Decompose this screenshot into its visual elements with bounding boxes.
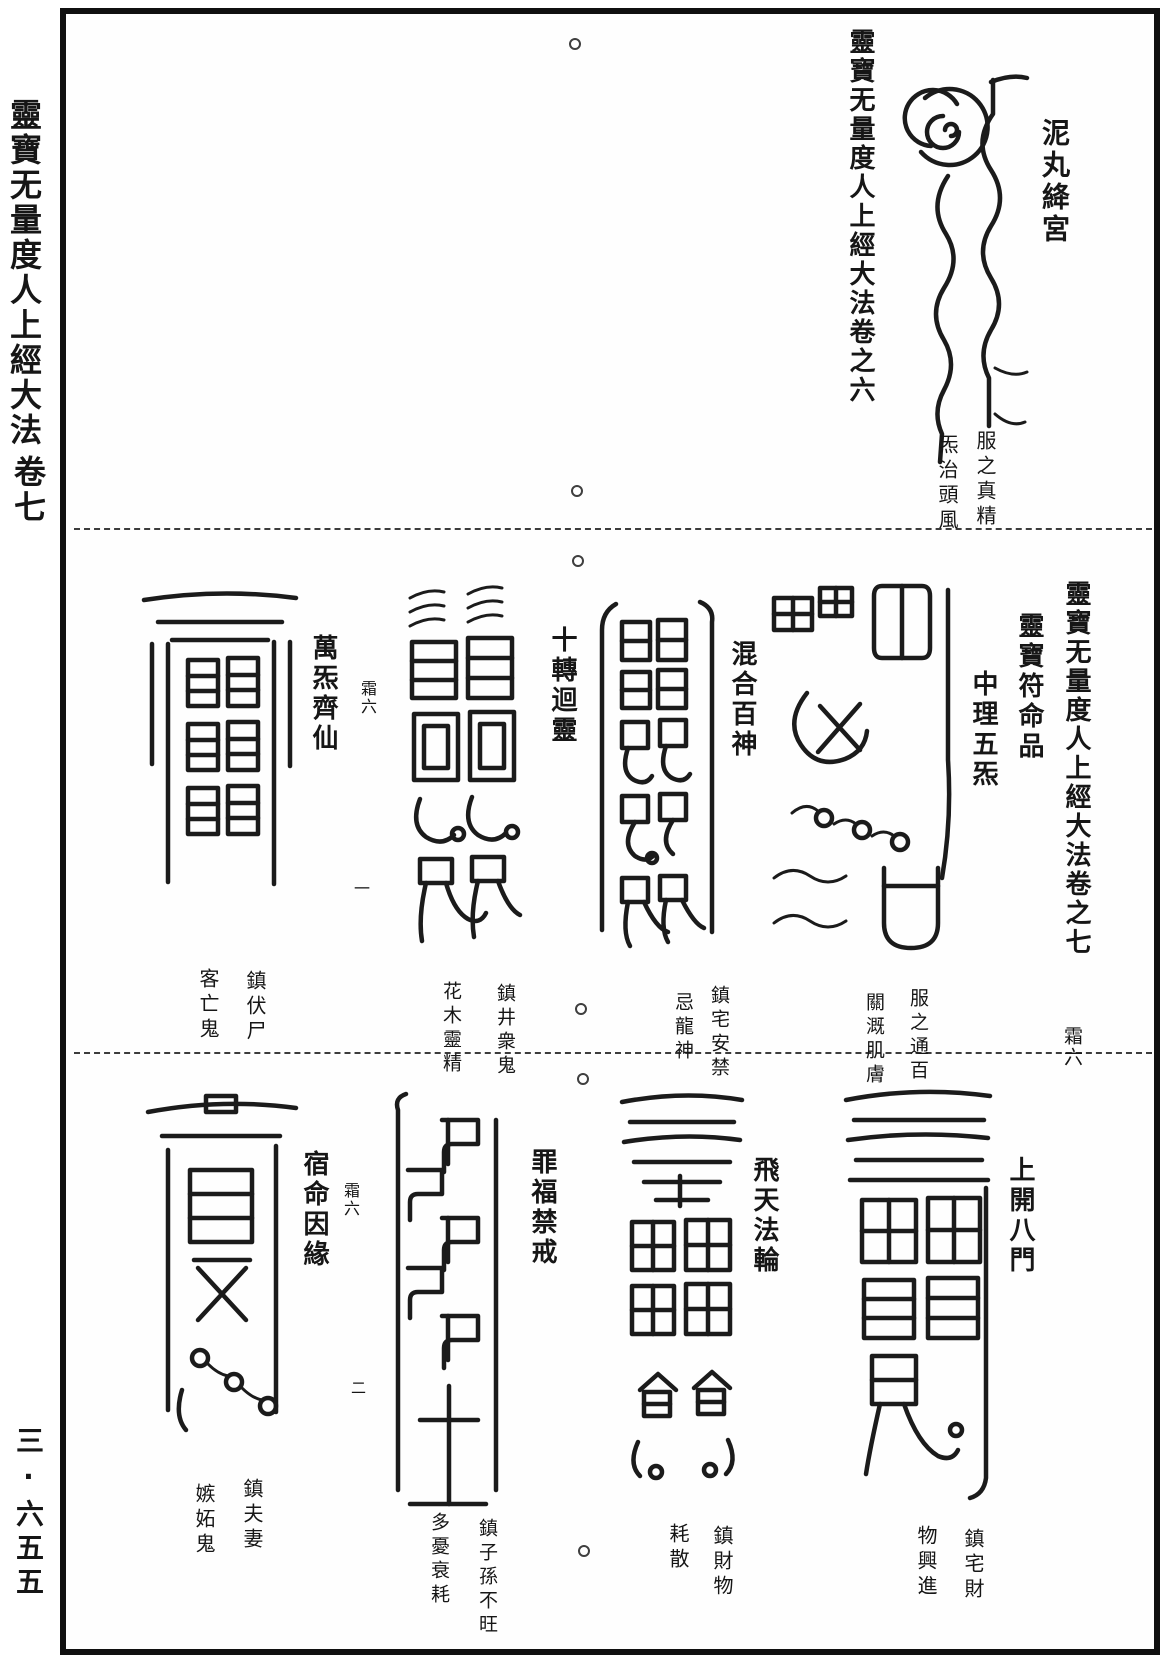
section-divider-bottom <box>74 1052 1152 1054</box>
talisman-caption-zuifu-right: 鎮子孫不旺 <box>477 1518 496 1638</box>
talisman-drawing-zhongli-wuqi <box>762 578 957 978</box>
talisman-label-shizhuan-huiling: 十轉迴靈 <box>549 626 575 746</box>
punch-hole-mark <box>578 1545 590 1557</box>
talisman-caption-wanqi-right: 鎮伏尸 <box>245 970 265 1045</box>
talisman-drawing-zuifu-jinjie <box>386 1090 508 1530</box>
page-margin-title: 靈寶无量度人上經大法 <box>8 98 40 448</box>
talisman-label-wanqi-qixian: 萬炁齊仙 <box>310 634 336 754</box>
punch-hole-mark <box>569 38 581 50</box>
fascicle-mark-shuang-six: 霜六 <box>359 680 375 716</box>
page-number: 三·六五五 <box>14 1426 42 1601</box>
talisman-caption-suming-right: 鎮夫妻 <box>242 1478 262 1553</box>
talisman-caption-shizhuan-right: 鎮井衆鬼 <box>495 983 514 1079</box>
talisman-caption-hunhe-left: 忌龍神 <box>673 992 692 1064</box>
talisman-drawing-suming-yinyuan <box>142 1090 302 1460</box>
talisman-caption-niwan-left: 炁治頭風 <box>937 434 957 534</box>
talisman-caption-wanqi-left: 客亡鬼 <box>198 968 218 1043</box>
talisman-caption-shizhuan-left: 花木靈精 <box>441 981 460 1077</box>
talisman-caption-zhongli-left: 關溉肌膚 <box>864 992 883 1088</box>
talisman-caption-zuifu-left: 多憂衰耗 <box>429 1512 448 1608</box>
talisman-label-hunhe-baishen: 混合百神 <box>729 640 755 760</box>
punch-hole-mark <box>575 1003 587 1015</box>
talisman-caption-zhongli-right: 服之通百 <box>908 988 927 1084</box>
punch-hole-mark <box>572 555 584 567</box>
talisman-drawing-feitian-falun <box>612 1090 750 1520</box>
punch-hole-mark <box>571 485 583 497</box>
talisman-drawing-shizhuan-huiling <box>396 584 528 956</box>
leaf-number-mark-two: 二 <box>350 1380 365 1397</box>
juan7-opening-title: 靈寶无量度人上經大法卷之七 <box>1063 580 1089 957</box>
talisman-drawing-niwan-jianggong <box>893 68 1038 468</box>
talisman-caption-niwan-right: 服之真精 <box>975 430 995 530</box>
talisman-label-niwan-jianggong: 泥丸絳宮 <box>1040 118 1068 246</box>
talisman-caption-feitian-left: 耗散 <box>668 1523 688 1573</box>
punch-hole-mark <box>577 1073 589 1085</box>
juan6-closing-title: 靈寶无量度人上經大法卷之六 <box>847 28 873 405</box>
talisman-caption-shangkai-right: 鎮宅財 <box>963 1528 983 1603</box>
talisman-caption-hunhe-right: 鎮宅安禁 <box>709 985 728 1081</box>
talisman-drawing-hunhe-baishen <box>592 596 722 958</box>
fascicle-mark-shuang-six: 霜六 <box>342 1182 358 1218</box>
talisman-label-suming-yinyuan: 宿命因緣 <box>301 1150 327 1270</box>
talisman-label-feitian-falun: 飛天法輪 <box>751 1156 777 1276</box>
talisman-caption-shangkai-left: 物興進 <box>916 1525 936 1600</box>
talisman-caption-feitian-right: 鎮財物 <box>712 1525 732 1600</box>
talisman-drawing-wanqi-qixian <box>138 584 303 894</box>
talisman-caption-suming-left: 嫉妬鬼 <box>194 1483 214 1558</box>
scanned-page: 靈寶无量度人上經大法 卷七 三·六五五 靈寶无量度人上經大法卷之六 泥丸絳宮 服… <box>0 0 1172 1663</box>
talisman-drawing-shangkai-bamen <box>834 1088 1002 1508</box>
leaf-number-mark-one: 一 <box>352 880 368 898</box>
fascicle-mark-shuang-six: 霜六 <box>1062 1026 1081 1068</box>
page-margin-volume: 卷七 <box>12 455 44 525</box>
talisman-label-shangkai-bamen: 上開八門 <box>1007 1156 1033 1276</box>
talisman-label-zuifu-jinjie: 罪福禁戒 <box>529 1148 555 1268</box>
chapter-title-fuming-pin: 靈寶符命品 <box>1016 612 1042 762</box>
talisman-label-zhongli-wuqi: 中理五炁 <box>970 670 996 790</box>
